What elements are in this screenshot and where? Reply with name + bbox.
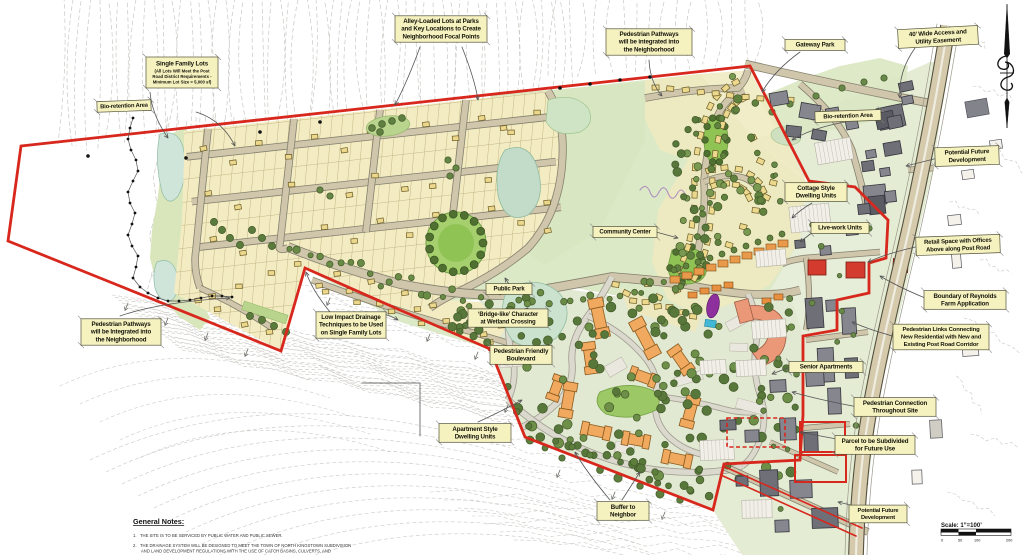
svg-text:Minimum Lot Size = 5,000 sf): Minimum Lot Size = 5,000 sf) — [153, 80, 212, 85]
svg-text:Apartment Style: Apartment Style — [452, 426, 498, 433]
svg-text:Gateway Park: Gateway Park — [796, 42, 835, 49]
svg-text:Techniques to be Used: Techniques to be Used — [319, 322, 383, 329]
svg-text:50: 50 — [958, 539, 962, 543]
svg-text:Pedestrian Connection: Pedestrian Connection — [863, 400, 928, 407]
svg-text:Dwelling Units: Dwelling Units — [796, 193, 837, 200]
svg-text:Pedestrian Friendly: Pedestrian Friendly — [494, 348, 549, 355]
svg-text:Pedestrian Pathways: Pedestrian Pathways — [91, 321, 151, 328]
svg-text:Public Park: Public Park — [493, 287, 525, 293]
svg-text:Scale: 1”=100’: Scale: 1”=100’ — [941, 523, 982, 529]
svg-text:Neighborhood Focal Points: Neighborhood Focal Points — [402, 34, 480, 41]
svg-text:will be Integrated into: will be Integrated into — [90, 329, 152, 336]
svg-text:100: 100 — [974, 539, 980, 543]
svg-text:Buffer to: Buffer to — [611, 504, 636, 511]
svg-text:Senior Apartments: Senior Apartments — [800, 364, 853, 371]
svg-text:Throughout Site: Throughout Site — [872, 408, 918, 415]
svg-text:Live-work Units: Live-work Units — [818, 225, 863, 232]
svg-text:Development: Development — [861, 515, 895, 521]
svg-text:200: 200 — [1006, 539, 1012, 543]
svg-text:Boulevard: Boulevard — [507, 356, 536, 363]
svg-text:for Future Use: for Future Use — [855, 446, 896, 453]
svg-text:General Notes:: General Notes: — [133, 517, 184, 526]
svg-text:Dwelling Units: Dwelling Units — [455, 434, 496, 441]
svg-text:2. THE DRAINAGE SYSTEM WILL: 2. THE DRAINAGE SYSTEM WILL BE DESIGNED … — [133, 543, 351, 548]
svg-text:Farm Application: Farm Application — [941, 301, 989, 308]
svg-text:Cottage Style: Cottage Style — [797, 185, 835, 192]
svg-text:Single Family Lots: Single Family Lots — [156, 61, 209, 68]
svg-text:Alley-Loaded Lots at Parks: Alley-Loaded Lots at Parks — [403, 18, 479, 25]
svg-text:at Wetland Crossing: at Wetland Crossing — [480, 319, 536, 325]
svg-text:Community Center: Community Center — [599, 230, 651, 236]
svg-text:and Key Locations to Create: and Key Locations to Create — [401, 26, 481, 33]
svg-text:Low Impact Drainage: Low Impact Drainage — [321, 314, 381, 321]
svg-text:will be integrated into: will be integrated into — [618, 39, 680, 46]
svg-text:on Single Family Lots: on Single Family Lots — [321, 330, 383, 337]
svg-text:New Residential with New and: New Residential with New and — [901, 335, 982, 341]
svg-text:Existing Post Road Corridor: Existing Post Road Corridor — [904, 342, 980, 348]
svg-text:Potential Future: Potential Future — [858, 508, 899, 514]
svg-text:Neighbor: Neighbor — [610, 512, 637, 519]
svg-text:Road District Requirements -: Road District Requirements - — [152, 74, 212, 79]
svg-text:Boundary of Reynolds: Boundary of Reynolds — [933, 293, 997, 300]
svg-text:‘Bridge-like’ Character: ‘Bridge-like’ Character — [478, 312, 539, 318]
svg-text:1. THE SITE IS TO BE SERVICE: 1. THE SITE IS TO BE SERVICED BY PUBLIC … — [133, 533, 283, 538]
svg-text:Parcel to be Subdivided: Parcel to be Subdivided — [842, 438, 909, 445]
svg-text:Pedestrian Links Connecting: Pedestrian Links Connecting — [902, 327, 980, 333]
svg-text:the Neighborhood: the Neighborhood — [96, 337, 147, 344]
svg-text:Development: Development — [948, 156, 986, 164]
svg-text:0: 0 — [941, 539, 943, 543]
svg-text:Pedestrian Pathways: Pedestrian Pathways — [619, 31, 679, 38]
svg-text:(All Lots Will Meet the Post: (All Lots Will Meet the Post — [154, 69, 210, 74]
svg-text:the Neighborhood: the Neighborhood — [624, 47, 675, 54]
svg-text:AND LAND DEVELOPMENT REGULATIO: AND LAND DEVELOPMENT REGULATIONS WITH TH… — [141, 549, 331, 554]
